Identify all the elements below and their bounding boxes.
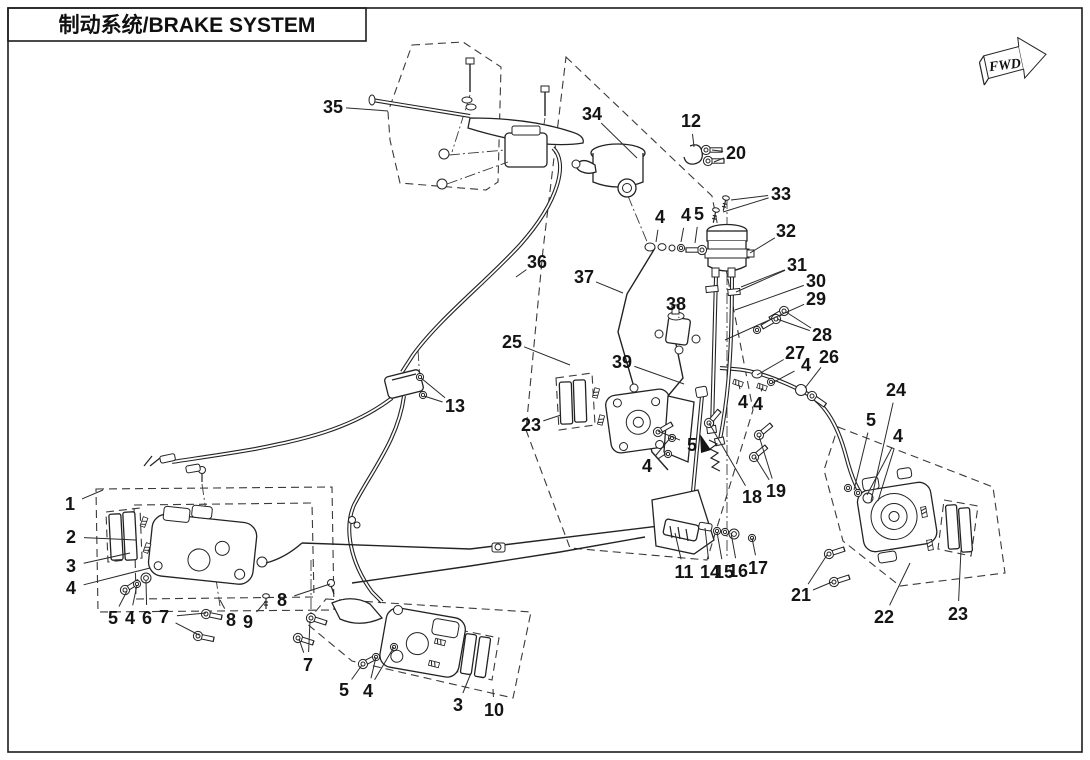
center-brake-pad xyxy=(559,382,572,424)
nut-16 xyxy=(729,529,739,539)
title-block: 制动系统/BRAKE SYSTEM xyxy=(8,8,366,41)
lever-assembly-35 xyxy=(369,58,583,189)
front-master-cylinder-34 xyxy=(572,144,645,197)
part-number-label: 35 xyxy=(323,97,343,117)
callout-4: 4 xyxy=(753,388,763,414)
callout-17: 17 xyxy=(748,538,768,578)
hose-end-fitting xyxy=(186,464,201,473)
callout-4: 4 xyxy=(738,385,748,412)
junction-block-13 xyxy=(384,369,427,399)
part-number-label: 31 xyxy=(787,255,807,275)
part-number-label: 4 xyxy=(655,207,665,227)
part-number-label: 4 xyxy=(125,608,135,628)
pipe-union xyxy=(492,543,505,552)
part-number-label: 36 xyxy=(527,252,547,272)
part-number-label: 4 xyxy=(893,426,903,446)
handlebar-clamp-12 xyxy=(684,145,724,166)
part-number-label: 23 xyxy=(521,415,541,435)
callout-3: 3 xyxy=(453,673,471,715)
part-number-label: 4 xyxy=(66,578,76,598)
callout-5: 5 xyxy=(339,665,362,700)
pointer-mark xyxy=(700,434,711,453)
reservoir-screw-33 xyxy=(710,207,720,223)
callout-6: 6 xyxy=(142,581,152,628)
part-number-label: 26 xyxy=(819,347,839,367)
banjo-bolt-5 xyxy=(686,245,707,254)
part-number-label: 29 xyxy=(806,289,826,309)
callout-36: 36 xyxy=(516,252,547,277)
part-number-label: 20 xyxy=(726,143,746,163)
left-banjo xyxy=(257,557,267,567)
rear-lower-caliper xyxy=(292,517,491,679)
mount-bolt-21 xyxy=(823,545,845,560)
fwd-arrow: FWD xyxy=(977,34,1049,85)
part-number-label: 28 xyxy=(812,325,832,345)
part-number-label: 5 xyxy=(108,608,118,628)
part-number-label: 32 xyxy=(776,221,796,241)
part-number-label: 4 xyxy=(738,392,748,412)
part-number-label: 4 xyxy=(681,205,691,225)
callout-23: 23 xyxy=(521,415,561,435)
bottom-brake-pad xyxy=(474,636,490,677)
callout-23: 23 xyxy=(948,550,968,624)
callout-25: 25 xyxy=(502,332,570,365)
callout-8: 8 xyxy=(277,584,330,610)
mount-bolt-7 xyxy=(292,632,314,647)
part-number-label: 30 xyxy=(806,271,826,291)
bottom-banjo xyxy=(394,606,403,615)
lever-clamp-bolt xyxy=(439,149,449,159)
part-number-label: 5 xyxy=(866,410,876,430)
part-number-label: 22 xyxy=(874,607,894,627)
center-brake-pad xyxy=(573,380,586,422)
callout-12: 12 xyxy=(681,111,701,147)
hose-clamp-31 xyxy=(706,285,719,292)
hose-clamp-31 xyxy=(728,288,741,295)
callout-16: 16 xyxy=(728,533,748,581)
part-number-label: 9 xyxy=(243,612,253,632)
part-number-label: 12 xyxy=(681,111,701,131)
part-number-label: 21 xyxy=(791,585,811,605)
part-number-label: 8 xyxy=(226,610,236,630)
part-number-label: 38 xyxy=(666,294,686,314)
part-number-label: 4 xyxy=(642,456,652,476)
part-number-label: 33 xyxy=(771,184,791,204)
caliper-bracket-arm xyxy=(332,599,382,624)
part-number-label: 17 xyxy=(748,558,768,578)
callout-7: 7 xyxy=(299,621,313,675)
part-number-label: 13 xyxy=(445,396,465,416)
part-number-label: 5 xyxy=(687,435,697,455)
part-number-label: 4 xyxy=(753,394,763,414)
right-brake-pad xyxy=(958,508,972,553)
reservoir-screw-33 xyxy=(720,195,730,211)
part-number-label: 11 xyxy=(674,562,693,582)
part-number-label: 34 xyxy=(582,104,602,124)
callout-22: 22 xyxy=(874,563,910,627)
washer-15 xyxy=(721,528,728,535)
right-brake-pad xyxy=(945,505,959,550)
callout-layer: 3534122033324453130292837363825392742624… xyxy=(65,97,968,720)
callout-9: 9 xyxy=(243,601,266,632)
outline-lever-assembly-35 xyxy=(388,42,501,190)
left-brake-pad xyxy=(109,514,123,561)
pad-pin-4 xyxy=(733,379,744,387)
page-title: 制动系统/BRAKE SYSTEM xyxy=(59,13,316,37)
part-number-label: 23 xyxy=(948,604,968,624)
part-number-label: 24 xyxy=(886,380,906,400)
reservoir-clamp-band xyxy=(705,249,749,258)
mount-bolt-21 xyxy=(828,573,850,588)
callout-13: 13 xyxy=(421,378,465,416)
callout-31: 31 xyxy=(736,255,807,292)
mount-bolt-7 xyxy=(193,631,215,644)
part-number-label: 16 xyxy=(728,561,748,581)
callout-5: 5 xyxy=(694,204,704,243)
callout-33: 33 xyxy=(723,184,791,212)
part-number-label: 5 xyxy=(694,204,704,224)
callout-4: 4 xyxy=(681,205,691,242)
fwd-label: FWD xyxy=(987,56,1021,75)
part-number-label: 4 xyxy=(801,355,811,375)
callout-39: 39 xyxy=(612,352,684,384)
part-number-label: 7 xyxy=(159,607,169,627)
callout-28: 28 xyxy=(777,312,832,345)
rear-right-caliper xyxy=(823,465,972,588)
bolt-19 xyxy=(748,443,770,463)
banjo-26 xyxy=(796,385,807,396)
callout-32: 32 xyxy=(750,221,796,253)
part-number-label: 19 xyxy=(766,481,786,501)
part-number-label: 4 xyxy=(363,681,373,701)
part-number-label: 37 xyxy=(574,267,594,287)
part-number-label: 25 xyxy=(502,332,522,352)
part-number-label: 1 xyxy=(65,494,75,514)
rear-center-caliper xyxy=(559,380,694,462)
left-brake-pad xyxy=(123,512,137,561)
part-number-label: 18 xyxy=(742,487,762,507)
callout-37: 37 xyxy=(574,267,623,293)
part-number-label: 10 xyxy=(484,700,504,720)
parts-catalog-page: 制动系统/BRAKE SYSTEM FWD xyxy=(0,0,1090,760)
part-number-label: 39 xyxy=(612,352,632,372)
banjo-fittings-upper xyxy=(645,243,707,255)
part-number-label: 2 xyxy=(66,527,76,547)
callout-27: 27 xyxy=(757,343,805,375)
callout-21: 21 xyxy=(791,555,832,605)
part-number-label: 3 xyxy=(66,556,76,576)
bolt-19 xyxy=(753,421,775,441)
part-number-label: 3 xyxy=(453,695,463,715)
brake-system-diagram: 制动系统/BRAKE SYSTEM FWD xyxy=(0,0,1090,760)
part-number-label: 8 xyxy=(277,590,287,610)
part-number-label: 6 xyxy=(142,608,152,628)
fitting-27 xyxy=(752,370,762,378)
part-number-label: 5 xyxy=(339,680,349,700)
callout-4: 4 xyxy=(655,207,665,242)
lever-clamp-bolt xyxy=(437,179,447,189)
hose-clip-8 xyxy=(328,580,335,587)
lever-master-cylinder xyxy=(505,133,547,167)
part-number-label: 7 xyxy=(303,655,313,675)
fwd-arrow-head xyxy=(1018,34,1049,78)
callout-1: 1 xyxy=(65,490,103,514)
left-brake-hose xyxy=(172,398,392,462)
